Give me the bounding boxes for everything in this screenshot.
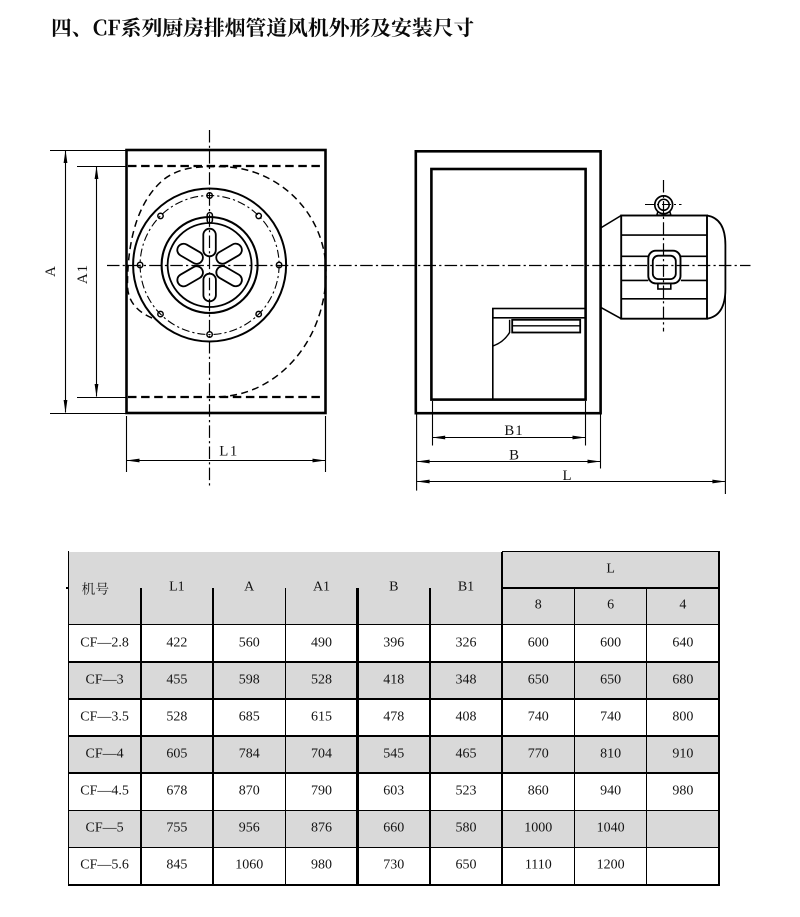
svg-text:B: B — [509, 447, 519, 463]
svg-text:L: L — [562, 468, 571, 484]
svg-text:B1: B1 — [504, 423, 523, 439]
svg-text:A1: A1 — [75, 264, 91, 284]
svg-text:A: A — [43, 266, 59, 277]
svg-text:L1: L1 — [219, 444, 238, 460]
